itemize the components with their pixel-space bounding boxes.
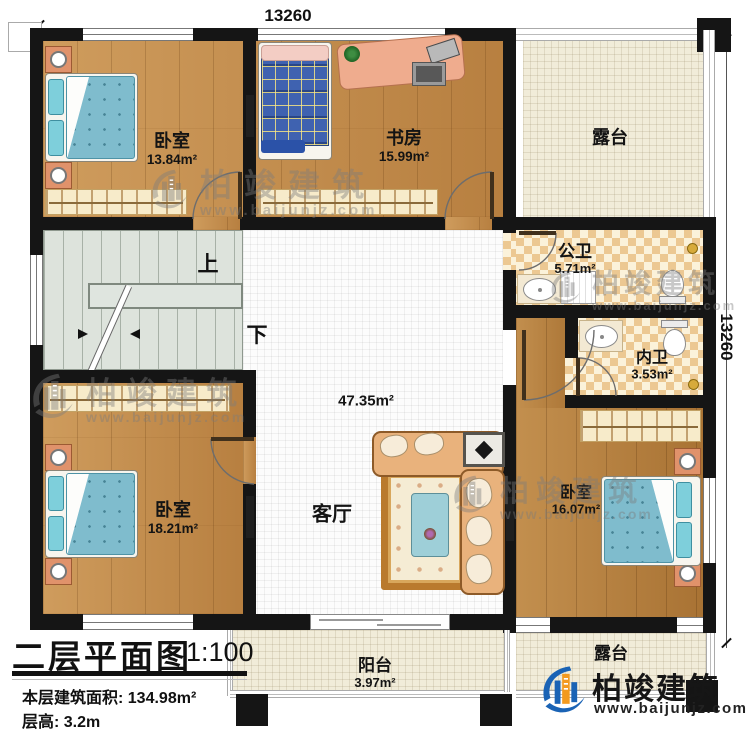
nightstand bbox=[45, 444, 72, 471]
room-area: 15.99m² bbox=[379, 149, 429, 165]
door-opening-study bbox=[445, 217, 492, 230]
bed-pillow bbox=[48, 476, 64, 511]
room-name: 客厅 bbox=[312, 504, 352, 527]
stair-direction-arrow bbox=[78, 329, 88, 339]
plan-scale: 1:100 bbox=[186, 637, 254, 668]
room-label-terrace-top: 露台 bbox=[592, 128, 628, 149]
table-flowers bbox=[424, 528, 436, 540]
tv-on-wall bbox=[506, 497, 514, 541]
nightstand bbox=[45, 162, 72, 189]
single-bed-pillow bbox=[261, 45, 329, 61]
toilet-bowl bbox=[661, 270, 684, 297]
brand-logo-icon bbox=[538, 663, 588, 718]
room-area: 16.07m² bbox=[552, 503, 600, 518]
parapet-terrace-top bbox=[516, 28, 697, 41]
door-opening-public-bath bbox=[503, 233, 516, 270]
room-name: 露台 bbox=[592, 128, 628, 149]
wardrobe bbox=[45, 385, 230, 412]
bed-pillow bbox=[676, 482, 692, 518]
floor-plan-canvas: 13260 13260 上 下 bbox=[0, 0, 750, 737]
wall-bedroom-bl-top bbox=[30, 370, 256, 383]
sink-basin bbox=[523, 278, 556, 301]
room-label-study: 书房 15.99m² bbox=[379, 128, 429, 164]
door-opening-bedroom-tl bbox=[193, 217, 240, 230]
room-area: 5.71m² bbox=[554, 261, 595, 276]
room-area: 3.53m² bbox=[631, 368, 672, 383]
bed-pillow bbox=[48, 79, 64, 115]
room-area: 47.35m² bbox=[338, 392, 394, 409]
brand-url: www.baijunjz.com bbox=[594, 700, 747, 717]
stair-down-label: 下 bbox=[247, 319, 268, 349]
bed-duvet bbox=[66, 473, 135, 555]
wall-mid-horizontal bbox=[30, 217, 716, 230]
room-label-balcony: 阳台 3.97m² bbox=[354, 656, 395, 690]
room-name: 露台 bbox=[594, 644, 628, 664]
towel-ring bbox=[687, 243, 698, 254]
room-name: 书房 bbox=[379, 128, 429, 149]
room-area: 13.84m² bbox=[147, 152, 197, 168]
room-name: 卧室 bbox=[552, 484, 600, 502]
wall-private-bath-bottom bbox=[565, 395, 716, 408]
plant bbox=[344, 46, 360, 62]
toilet-tank bbox=[659, 296, 686, 304]
side-table-lamp bbox=[463, 432, 505, 467]
room-label-bedroom-bl: 卧室 18.21m² bbox=[148, 500, 198, 536]
room-area-living: 47.35m² bbox=[338, 392, 394, 409]
dimension-label-right: 13260 bbox=[716, 313, 736, 360]
stair-up-label: 上 bbox=[198, 248, 219, 278]
toilet-tank bbox=[661, 320, 688, 328]
floor-height-line: 层高: 3.2m bbox=[22, 708, 100, 732]
stair-direction-arrow bbox=[130, 329, 140, 339]
room-name: 内卫 bbox=[631, 349, 672, 367]
towel-ring bbox=[688, 379, 699, 390]
wardrobe bbox=[258, 189, 438, 215]
floor-area-line: 本层建筑面积: 134.98m² bbox=[22, 684, 196, 708]
room-name: 公卫 bbox=[554, 242, 595, 262]
monitor bbox=[412, 62, 446, 86]
tv-on-wall bbox=[246, 95, 254, 137]
sliding-door-balcony bbox=[310, 614, 450, 630]
parapet-terrace-right bbox=[703, 30, 715, 217]
stair-handrail bbox=[88, 283, 243, 309]
column-balcony-right bbox=[480, 694, 512, 726]
parapet-balcony-right bbox=[504, 630, 510, 692]
room-area: 18.21m² bbox=[148, 521, 198, 537]
nightstand bbox=[45, 46, 72, 73]
bed-duvet bbox=[66, 76, 135, 159]
bed-pillow bbox=[48, 516, 64, 551]
room-name: 卧室 bbox=[147, 131, 197, 152]
room-area: 3.97m² bbox=[354, 675, 395, 690]
wall-study-terrace-divider bbox=[503, 41, 516, 230]
nightstand bbox=[45, 558, 72, 585]
room-label-terrace-bottom: 露台 bbox=[594, 644, 628, 664]
bed-throw bbox=[261, 140, 305, 153]
opening-terrace-bottom-right bbox=[677, 617, 703, 633]
room-label-living: 客厅 bbox=[312, 504, 352, 527]
opening-terrace-bottom-left bbox=[516, 617, 550, 633]
window-bedroom-tl bbox=[83, 28, 193, 41]
door-opening-bedroom-bl bbox=[243, 437, 256, 484]
room-label-private-bath: 内卫 3.53m² bbox=[631, 349, 672, 382]
single-bed-plaid-duvet bbox=[261, 58, 329, 146]
coffee-table bbox=[411, 493, 449, 557]
bed-pillow bbox=[48, 120, 64, 156]
sink-basin bbox=[585, 325, 618, 348]
wall-bath-divider bbox=[503, 305, 716, 318]
nightstand bbox=[674, 448, 701, 475]
window-bedroom-bl bbox=[83, 614, 193, 630]
tv-on-wall bbox=[246, 496, 254, 538]
bed-pillow bbox=[676, 522, 692, 558]
door-opening-private-bath bbox=[565, 358, 578, 395]
title-underline bbox=[12, 671, 247, 676]
column-balcony-left bbox=[236, 694, 268, 726]
wardrobe bbox=[580, 410, 701, 442]
room-name: 阳台 bbox=[354, 656, 395, 676]
room-label-public-bath: 公卫 5.71m² bbox=[554, 242, 595, 276]
room-label-bedroom-br: 卧室 16.07m² bbox=[552, 484, 600, 517]
window-stairs bbox=[30, 255, 43, 345]
parapet-balcony-bottom bbox=[230, 690, 508, 698]
room-label-bedroom-tl: 卧室 13.84m² bbox=[147, 131, 197, 167]
dimension-label-top: 13260 bbox=[264, 6, 311, 26]
wall-right bbox=[703, 217, 716, 633]
room-name: 卧室 bbox=[148, 500, 198, 521]
bed-duvet bbox=[604, 479, 674, 563]
window-bedroom-br bbox=[703, 478, 716, 563]
wardrobe bbox=[45, 189, 187, 215]
title-underline-thin bbox=[12, 679, 247, 680]
